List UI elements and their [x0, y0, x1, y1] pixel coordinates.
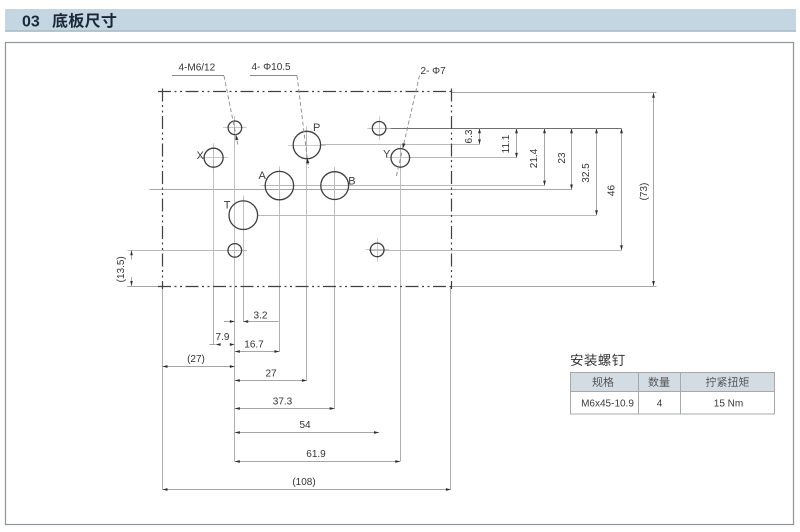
- svg-text:7.9: 7.9: [216, 332, 230, 343]
- svg-text:15 Nm: 15 Nm: [714, 399, 743, 410]
- svg-text:6.3: 6.3: [464, 129, 475, 143]
- svg-text:16.7: 16.7: [244, 340, 264, 351]
- svg-text:3.2: 3.2: [254, 311, 268, 322]
- svg-text:37.3: 37.3: [273, 397, 293, 408]
- svg-text:54: 54: [299, 420, 311, 431]
- svg-text:4- Φ10.5: 4- Φ10.5: [252, 62, 292, 73]
- svg-text:32.5: 32.5: [581, 163, 592, 183]
- svg-text:M6x45-10.9: M6x45-10.9: [581, 399, 634, 410]
- svg-text:B: B: [348, 176, 355, 188]
- svg-text:(108): (108): [292, 477, 315, 488]
- svg-text:X: X: [197, 150, 205, 162]
- svg-text:03: 03: [22, 14, 40, 31]
- svg-text:23: 23: [557, 152, 568, 164]
- svg-text:21.4: 21.4: [529, 148, 540, 168]
- svg-text:(73): (73): [639, 183, 650, 201]
- svg-text:2- Φ7: 2- Φ7: [421, 66, 447, 77]
- svg-text:11.1: 11.1: [501, 134, 512, 153]
- svg-text:P: P: [313, 122, 320, 134]
- svg-text:46: 46: [607, 185, 618, 197]
- svg-text:4: 4: [657, 399, 663, 410]
- svg-text:61.9: 61.9: [306, 449, 326, 460]
- svg-text:27: 27: [265, 369, 277, 380]
- svg-text:A: A: [259, 170, 267, 182]
- svg-text:(27): (27): [187, 354, 205, 365]
- svg-text:4-M6/12: 4-M6/12: [179, 63, 216, 74]
- svg-text:T: T: [224, 199, 231, 211]
- svg-text:(13.5): (13.5): [116, 256, 127, 282]
- svg-text:Y: Y: [383, 148, 391, 160]
